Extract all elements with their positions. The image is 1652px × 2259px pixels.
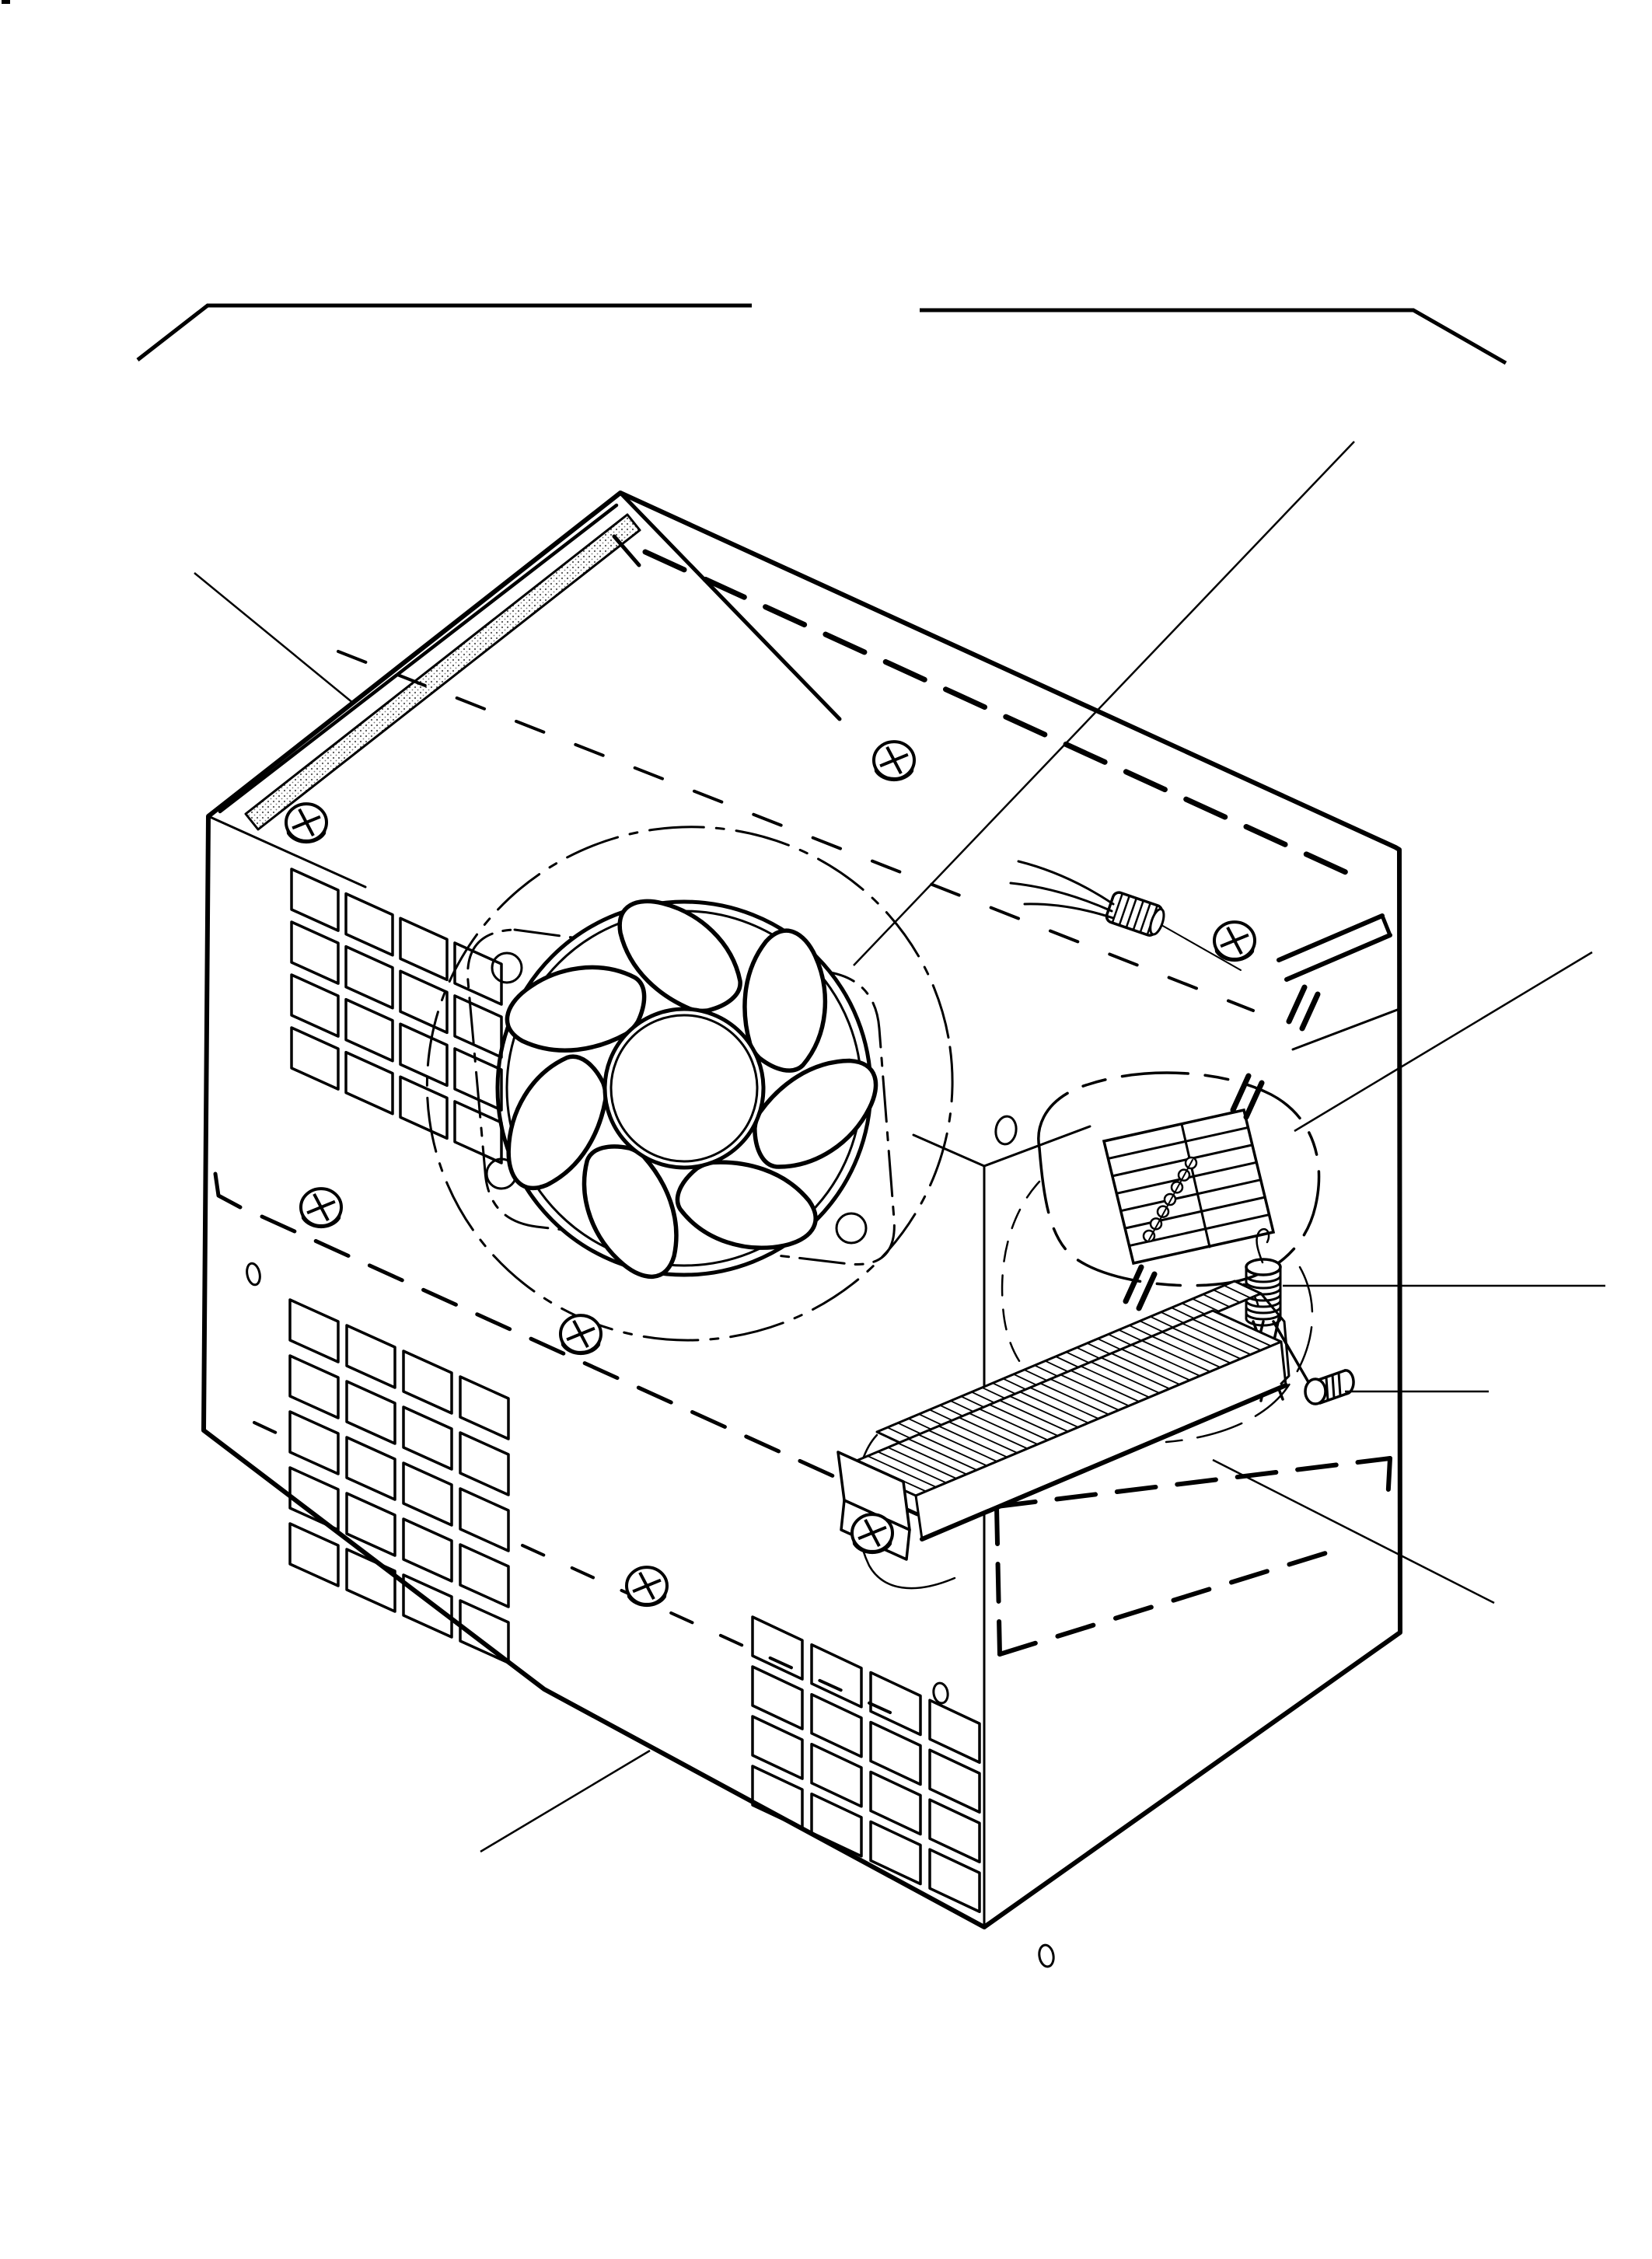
vent-cell xyxy=(290,1524,338,1586)
leader-bottom-cover xyxy=(480,1751,650,1852)
scan-artifact-dash xyxy=(2,0,10,4)
fan-hub-outer xyxy=(605,1009,763,1168)
phillips-screw xyxy=(1214,922,1255,960)
fan-bolt-hole xyxy=(836,1213,866,1243)
phillips-screw xyxy=(561,1315,601,1353)
case-hole xyxy=(1038,1944,1056,1968)
break-mark-right xyxy=(920,310,1506,363)
fan-bolt-hole xyxy=(492,953,522,983)
section-break-marks xyxy=(138,306,1506,363)
phillips-screw xyxy=(301,1189,341,1227)
phillips-screw xyxy=(286,804,327,842)
exploded-view-illustration xyxy=(0,0,1652,2259)
manual-page xyxy=(0,0,1652,2259)
leader-top-vent-slot xyxy=(194,573,354,704)
phillips-screw xyxy=(627,1567,667,1605)
break-mark-left xyxy=(138,306,752,360)
phillips-screw xyxy=(874,742,914,780)
right-face-dash-left xyxy=(997,1507,1000,1654)
phillips-screw xyxy=(852,1514,892,1552)
